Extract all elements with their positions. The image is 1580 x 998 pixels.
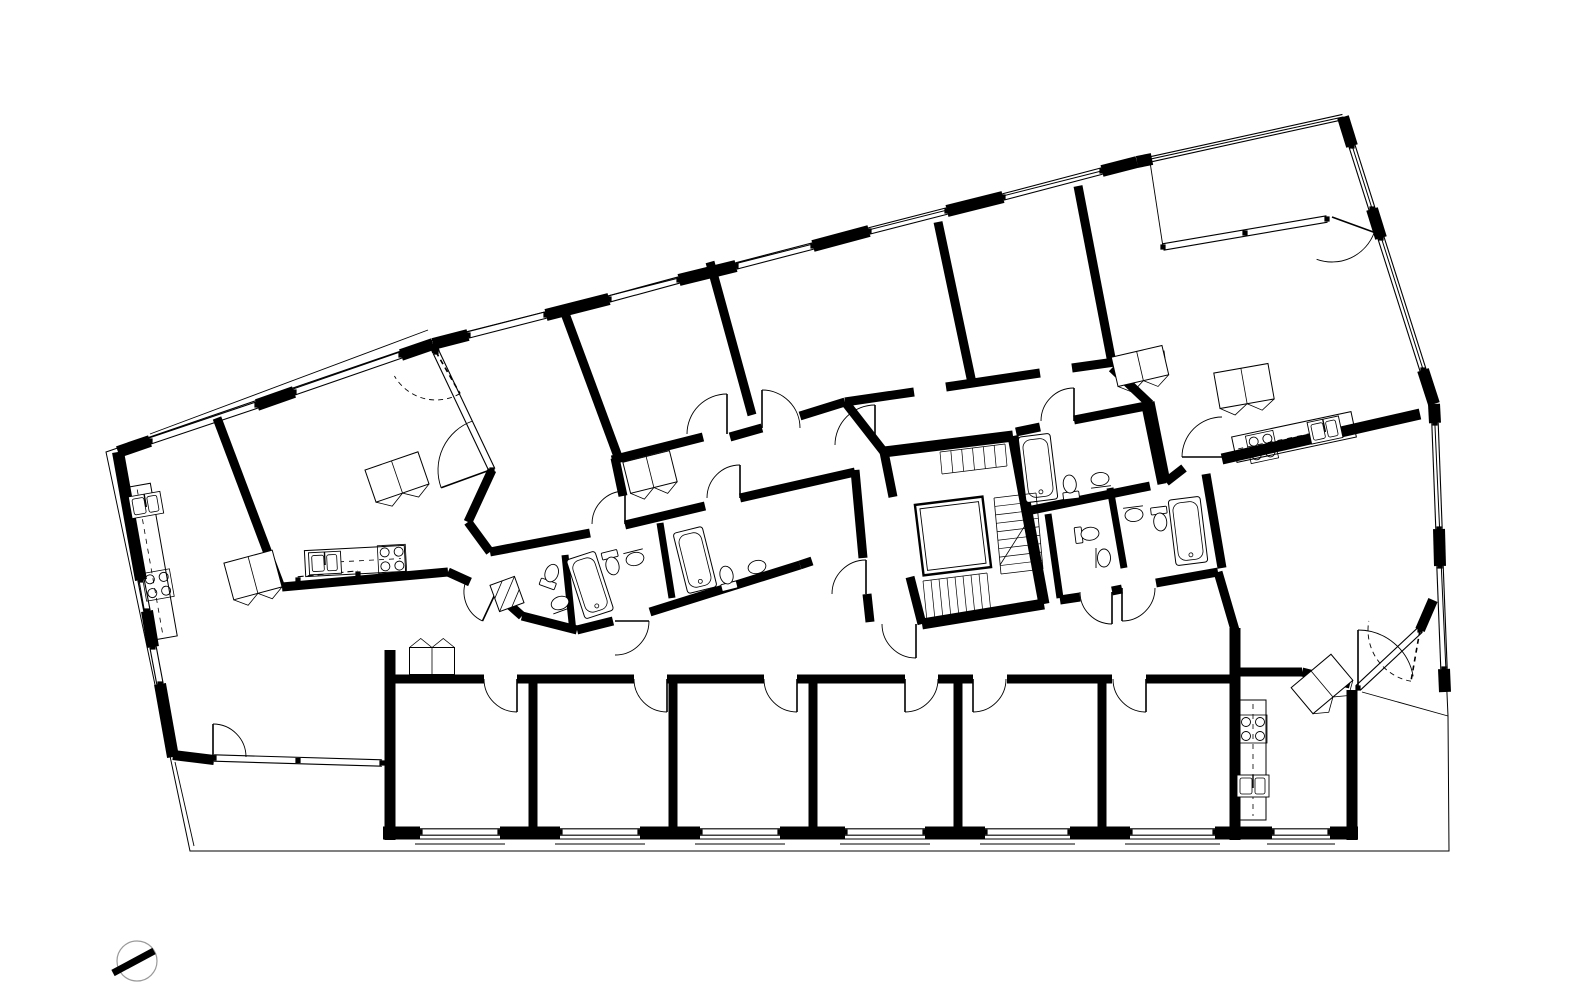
wardrobe-doors-open xyxy=(410,639,455,648)
window-mullion xyxy=(1355,685,1360,690)
window-line xyxy=(1164,222,1328,250)
door-swing-arc xyxy=(213,724,246,757)
wardrobe xyxy=(1111,346,1170,396)
wall xyxy=(1166,468,1184,482)
door-swing-arc xyxy=(832,560,866,594)
wall xyxy=(1343,117,1352,146)
elevator xyxy=(915,497,991,576)
wall xyxy=(1423,370,1434,404)
kitchen-sink xyxy=(1237,775,1269,797)
door-swing-arc xyxy=(707,465,740,498)
window-mullion xyxy=(379,760,384,765)
window-line xyxy=(295,358,402,395)
stair-tread xyxy=(931,580,935,620)
tub-outer xyxy=(673,526,717,593)
wall xyxy=(282,572,448,587)
window-line xyxy=(1162,216,1326,244)
window-line xyxy=(1437,566,1441,669)
wash-basin xyxy=(1096,548,1111,568)
wash-basin xyxy=(1123,506,1145,523)
wardrobe xyxy=(1214,363,1276,417)
door-leaf xyxy=(436,352,460,394)
wall xyxy=(546,299,609,315)
wardrobe xyxy=(410,639,455,675)
terrace-line xyxy=(1150,162,1163,247)
wall xyxy=(845,392,914,402)
stove-burner xyxy=(1256,718,1265,727)
north-arrow-needle xyxy=(113,951,154,973)
kitchen-sink xyxy=(128,491,163,518)
wall xyxy=(490,533,590,552)
door-swing-arc xyxy=(687,394,727,434)
door-swing-arc xyxy=(764,679,797,712)
wall xyxy=(1218,572,1235,630)
toilet xyxy=(1061,474,1080,500)
door-swing-arc xyxy=(762,390,800,428)
window-line xyxy=(1153,120,1344,162)
wall xyxy=(1048,514,1060,598)
terrace-line xyxy=(1362,692,1448,716)
window-line xyxy=(433,353,489,471)
window-line xyxy=(1151,114,1342,156)
stair-rail xyxy=(994,498,1001,574)
wash-basin xyxy=(1089,471,1111,488)
stove-burner xyxy=(395,561,404,570)
window-mullion xyxy=(1324,216,1329,221)
window-line xyxy=(149,402,256,438)
terrace-line xyxy=(175,762,194,846)
wall xyxy=(1102,162,1137,171)
toilet xyxy=(601,549,622,576)
window-mullion xyxy=(1160,244,1165,249)
wall xyxy=(615,458,623,496)
window-mullion xyxy=(295,758,300,763)
stair-tread xyxy=(939,579,943,619)
door-swing-arc xyxy=(1113,679,1146,712)
wall xyxy=(1074,406,1146,420)
window-mullion xyxy=(1242,230,1247,235)
wall xyxy=(938,222,972,383)
stove-burner xyxy=(1242,718,1251,727)
door-swing-arc xyxy=(1122,588,1155,621)
basin-bowl xyxy=(1090,471,1109,486)
door-leaf xyxy=(1332,217,1374,232)
wall xyxy=(1439,529,1440,566)
stair-tread xyxy=(947,578,951,618)
stair-tread xyxy=(973,448,975,470)
sink-faucet xyxy=(324,552,325,565)
kitchen-sink xyxy=(308,551,341,575)
wall xyxy=(730,428,762,437)
wall xyxy=(910,577,922,624)
door-swing-arc xyxy=(905,679,938,712)
stair-tread xyxy=(963,576,967,616)
wall xyxy=(855,470,863,558)
bathtub xyxy=(673,526,717,593)
basin-bowl xyxy=(1098,549,1111,567)
floor-plan-drawing xyxy=(0,0,1580,998)
floorplan-sheet xyxy=(0,0,1580,998)
stair-tread xyxy=(994,445,996,467)
basin-back xyxy=(1091,486,1111,488)
wall xyxy=(173,755,214,760)
door-swing-arc xyxy=(615,621,649,655)
door-swing-arc xyxy=(882,624,916,658)
stair-tread xyxy=(983,447,985,469)
wall xyxy=(946,373,1040,387)
wall xyxy=(660,523,672,598)
wall xyxy=(1206,474,1222,568)
wall xyxy=(947,197,1003,211)
wall xyxy=(867,594,870,622)
wall xyxy=(813,231,869,246)
stove-burner xyxy=(1256,732,1265,741)
wall xyxy=(800,561,812,565)
stair-tread xyxy=(971,575,975,615)
stove-burner xyxy=(1242,732,1251,741)
window-line xyxy=(1384,237,1426,369)
stove-burner xyxy=(380,548,389,557)
shaft xyxy=(490,576,524,611)
wall xyxy=(160,684,173,757)
wall xyxy=(577,621,613,630)
wardrobe xyxy=(365,452,432,511)
wall xyxy=(740,472,855,498)
wardrobe xyxy=(224,550,284,608)
wall xyxy=(1112,589,1122,591)
window-line xyxy=(156,646,163,683)
wall xyxy=(1110,488,1124,568)
wall xyxy=(1420,600,1433,630)
wall xyxy=(433,344,436,352)
door-swing-arc xyxy=(1041,388,1074,421)
stair-tread xyxy=(955,577,959,617)
toilet xyxy=(1074,525,1100,544)
bathtub xyxy=(1168,496,1208,565)
wall xyxy=(1156,572,1218,583)
wall xyxy=(1444,669,1445,692)
wall xyxy=(625,506,705,525)
stove-burner xyxy=(147,588,157,598)
wall xyxy=(257,392,294,405)
toilet-bowl xyxy=(1153,512,1168,531)
wall xyxy=(563,308,620,462)
wall xyxy=(1016,427,1040,432)
window-line xyxy=(1356,628,1418,686)
wall xyxy=(118,441,150,452)
stair-tread xyxy=(987,573,991,613)
stair-tread xyxy=(1005,444,1007,466)
basin-bowl xyxy=(1124,507,1143,522)
window-line xyxy=(1002,168,1101,194)
wall xyxy=(401,344,433,355)
wall xyxy=(800,402,845,416)
door-swing-arc xyxy=(394,376,460,400)
wall xyxy=(468,522,490,552)
door-swing-arc xyxy=(1080,592,1112,624)
wall xyxy=(1060,597,1080,600)
stair-tread xyxy=(962,449,964,471)
basin-back xyxy=(1123,506,1143,508)
wall xyxy=(884,452,893,497)
window-line xyxy=(439,351,495,469)
wall xyxy=(1137,159,1152,162)
wash-basin xyxy=(623,549,646,568)
wall xyxy=(433,335,468,344)
door-swing-arc xyxy=(634,679,667,712)
terrace-line xyxy=(150,330,428,434)
wall xyxy=(468,470,492,522)
wall xyxy=(884,436,1013,452)
toilet-bowl xyxy=(1080,526,1099,541)
wall xyxy=(845,402,884,452)
toilet xyxy=(1150,506,1169,532)
window-line xyxy=(293,352,400,389)
wall xyxy=(1078,186,1112,363)
basin-bowl xyxy=(625,551,646,568)
door-swing-arc xyxy=(1368,621,1411,681)
stove-outline xyxy=(142,569,174,601)
site-outline xyxy=(106,117,1449,851)
wall xyxy=(448,572,470,582)
wall xyxy=(710,262,752,415)
stove-burner xyxy=(394,547,403,556)
toilet-bowl xyxy=(1062,474,1077,493)
door-swing-arc xyxy=(1182,417,1222,457)
door-swing-arc xyxy=(1317,232,1375,262)
toilet xyxy=(539,562,562,590)
stair-tread xyxy=(940,452,942,474)
stair-tread xyxy=(979,574,983,614)
window-line xyxy=(1378,239,1420,371)
stove-burner xyxy=(381,562,390,571)
wall xyxy=(1434,404,1435,423)
stove xyxy=(142,569,174,601)
door-swing-arc xyxy=(484,679,517,712)
window-line xyxy=(1004,174,1103,200)
stair-tread xyxy=(951,451,953,473)
door-swing-arc xyxy=(973,679,1006,712)
